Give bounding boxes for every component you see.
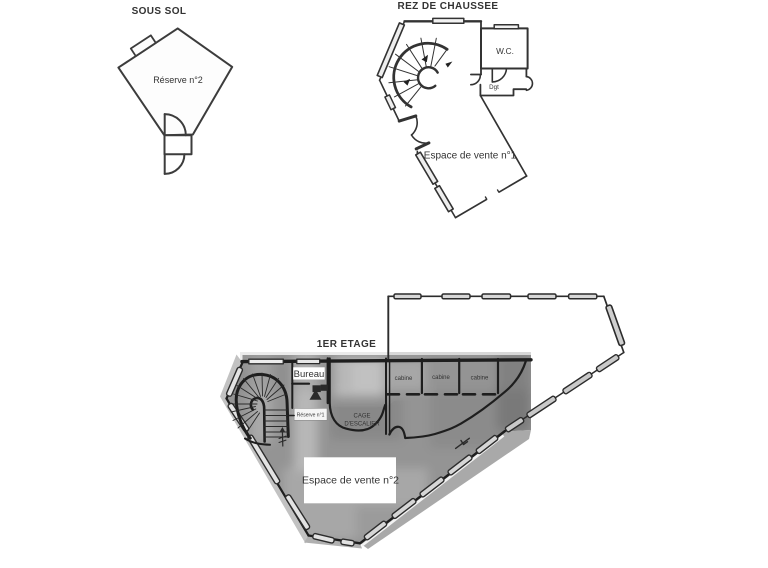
- svg-text:Bureau: Bureau: [294, 369, 325, 380]
- svg-text:cabine: cabine: [395, 376, 413, 382]
- svg-text:1ER ETAGE: 1ER ETAGE: [317, 339, 377, 350]
- svg-text:REZ DE CHAUSSEE: REZ DE CHAUSSEE: [397, 1, 498, 12]
- svg-text:Espace de vente n°2: Espace de vente n°2: [302, 475, 399, 487]
- svg-text:W.C.: W.C.: [496, 47, 514, 56]
- svg-text:cabine: cabine: [471, 376, 489, 382]
- svg-text:D'ESCALIER: D'ESCALIER: [344, 422, 380, 428]
- svg-text:Dgt: Dgt: [489, 84, 499, 91]
- svg-text:Réserve n°1: Réserve n°1: [297, 413, 325, 419]
- svg-text:SOUS SOL: SOUS SOL: [132, 6, 187, 17]
- svg-text:Réserve n°2: Réserve n°2: [153, 75, 203, 85]
- svg-text:CAGE: CAGE: [353, 414, 370, 420]
- svg-text:Espace de vente n°1: Espace de vente n°1: [424, 151, 517, 162]
- svg-text:cabine: cabine: [432, 375, 450, 381]
